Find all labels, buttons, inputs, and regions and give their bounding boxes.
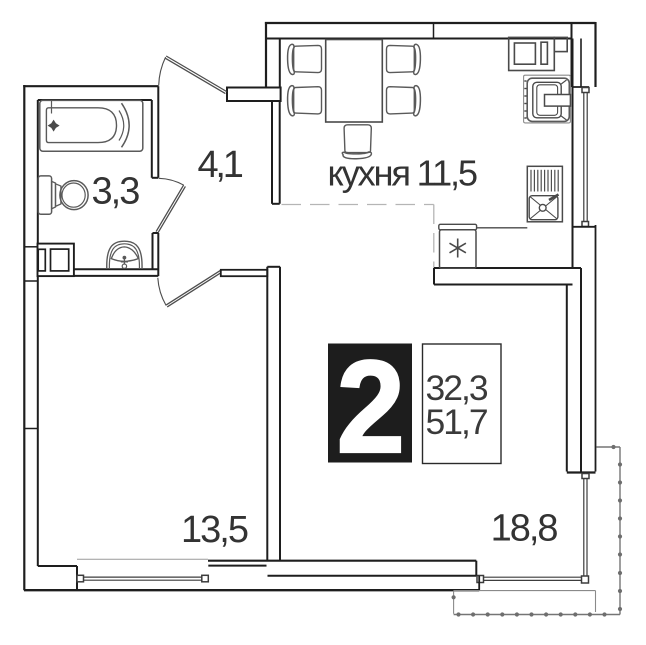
svg-text:2: 2 (337, 333, 406, 480)
svg-text:13,5: 13,5 (181, 509, 248, 551)
svg-text:3,3: 3,3 (92, 171, 140, 213)
svg-text:кухня 11,5: кухня 11,5 (328, 153, 477, 194)
svg-text:4,1: 4,1 (198, 144, 243, 186)
svg-text:51,7: 51,7 (426, 402, 487, 442)
svg-text:18,8: 18,8 (491, 508, 558, 550)
